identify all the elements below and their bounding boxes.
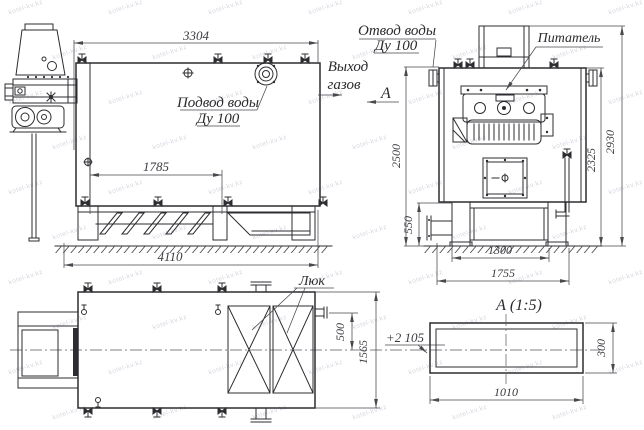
detail-outer-frame: [430, 323, 583, 373]
dim-1300-text: 1300: [488, 243, 512, 257]
dim-550-text: 550: [401, 216, 415, 234]
dim-1755-text: 1755: [491, 266, 515, 280]
dim-4110-text: 4110: [157, 249, 183, 264]
tank-top-valves: [78, 54, 309, 63]
water-supply-label: Подвод воды Ду 100: [176, 86, 267, 127]
side-view: Подвод воды Ду 100: [5, 24, 332, 268]
side-flanges: [429, 70, 597, 86]
dim-2930-text: 2930: [603, 130, 617, 154]
gas-outlet-annotation: Выход газов: [318, 59, 369, 95]
tank-body: [76, 63, 320, 206]
water-supply-text-2: Ду 100: [195, 111, 240, 127]
base-frame: [78, 206, 315, 240]
end-base: [427, 202, 568, 246]
drain-pipe-elbow: [556, 149, 571, 218]
dim-1565-text: 1565: [356, 340, 370, 364]
feeder-drive-assembly: [5, 76, 77, 241]
dim-2325: 2325: [584, 68, 626, 246]
dim-500-text: 500: [333, 323, 347, 341]
dim-300: 300: [585, 323, 617, 373]
dim-4110: 4110: [64, 210, 318, 268]
feeder-machine: [453, 86, 553, 144]
water-supply-text-1: Подвод воды: [176, 95, 259, 111]
dim-2325-text: 2325: [584, 148, 598, 172]
water-outlet-text-1: Отвод воды: [358, 23, 436, 39]
gas-outlet-text-2: газов: [327, 77, 361, 93]
plan-hatches: [228, 306, 313, 393]
dim-1010: 1010: [430, 376, 583, 404]
access-door: [483, 158, 527, 198]
ground-end: [424, 246, 602, 250]
hatch-label: Люк: [252, 274, 334, 333]
dim-3304-text: 3304: [182, 28, 210, 43]
end-view: Отвод воды Ду 100 Питатель 2500 550: [358, 23, 626, 285]
gas-outlet-text-1: Выход: [328, 59, 369, 75]
feeder-hopper: [16, 24, 65, 75]
feeder-text: Питатель: [537, 31, 601, 46]
water-supply-flange: [255, 63, 277, 85]
detail-a-title: А (1:5): [495, 297, 542, 314]
dim-500: 500: [329, 313, 358, 350]
section-a-letter: А: [380, 85, 391, 102]
dim-1785-text: 1785: [143, 159, 170, 174]
water-outlet-text-2: Ду 100: [373, 38, 418, 54]
trough: [228, 213, 310, 235]
detail-inner-frame: [436, 329, 577, 367]
technical-drawing-page: kotel-kv.kzkotel-kv.kzkotel-kv.kzkotel-k…: [0, 0, 644, 430]
elevation-text: +2 105: [386, 330, 425, 345]
tank-drain-valves: [81, 197, 327, 206]
section-a-mark: А: [367, 85, 399, 102]
dim-3304: 3304: [74, 28, 318, 150]
detail-a-view: А (1:5) 1010 300: [430, 297, 617, 404]
ground-side: [55, 246, 332, 250]
feed-chute: [479, 26, 529, 68]
drawing-canvas: Подвод воды Ду 100: [0, 0, 644, 430]
dim-2500-text: 2500: [389, 144, 403, 168]
dim-300-text: 300: [594, 339, 608, 358]
dim-1010-text: 1010: [494, 385, 518, 399]
water-outlet-label: Отвод воды Ду 100: [358, 23, 436, 67]
hatch-text: Люк: [298, 274, 325, 289]
